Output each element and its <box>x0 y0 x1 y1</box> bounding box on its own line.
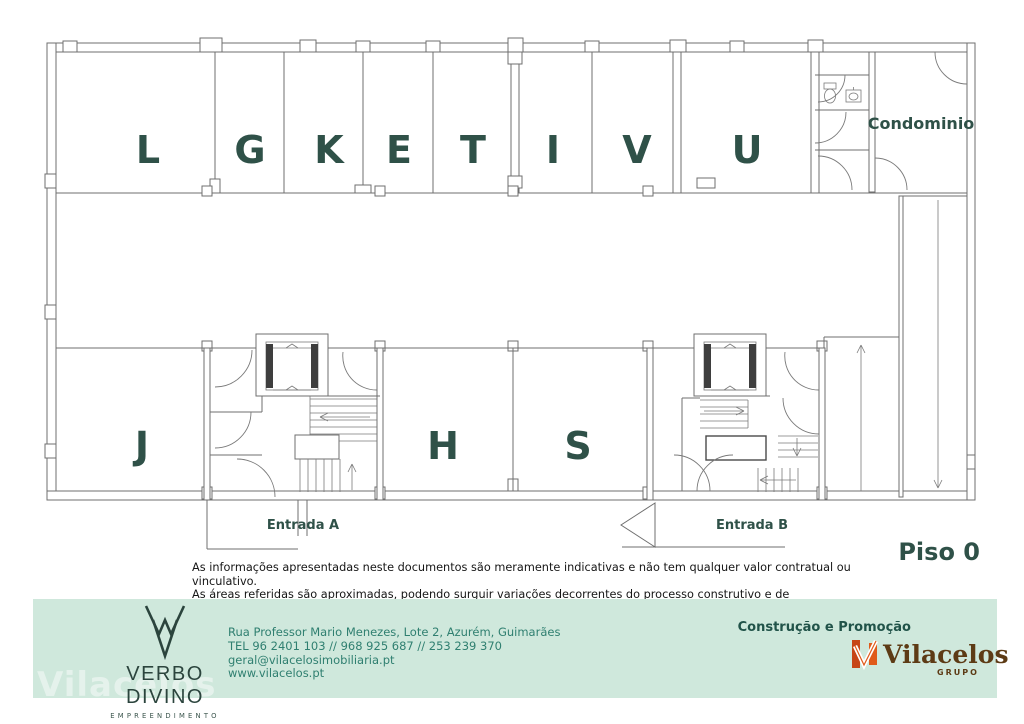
unit-label-v: V <box>622 128 652 172</box>
entrance-a-label: Entrada A <box>267 518 339 533</box>
developer-subtitle: EMPREENDIMENTO <box>95 712 235 720</box>
footer-band: Vilacelos VERBO DIVINO EMPREENDIMENTO Ru… <box>33 599 997 698</box>
disclaimer-line-1: As informações apresentadas neste docume… <box>192 561 872 588</box>
contact-address: Rua Professor Mario Menezes, Lote 2, Azu… <box>228 626 560 640</box>
stairs-b-icon <box>700 400 818 492</box>
unit-label-j: J <box>132 424 149 468</box>
developer-logo: VERBO DIVINO EMPREENDIMENTO <box>95 602 235 720</box>
top-row-partitions <box>56 52 967 193</box>
brand-subtitle: GRUPO <box>937 668 979 677</box>
promoter-heading: Construção e Promoção <box>738 620 911 635</box>
sink-icon <box>846 87 861 102</box>
floorplan-page: L G K E T I V U J H S Condominio Entrada… <box>0 0 1024 724</box>
condominio-label: Condominio <box>868 114 975 133</box>
stairs-a-icon <box>295 396 377 492</box>
contact-phone: TEL 96 2401 103 // 968 925 687 // 253 23… <box>228 640 560 654</box>
floor-label: Piso 0 <box>898 538 980 566</box>
verbo-divino-mark-icon <box>134 602 196 662</box>
unit-label-u: U <box>732 128 763 172</box>
unit-label-g: G <box>234 128 265 172</box>
wc-block <box>815 52 875 192</box>
unit-label-i: I <box>546 128 560 172</box>
stair-core-b <box>674 334 819 492</box>
elevator-a-icon <box>256 334 328 396</box>
top-wall-marks <box>45 38 975 469</box>
toilet-icon <box>824 83 836 103</box>
unit-label-k: K <box>314 128 345 172</box>
brand-name: Vilacelos <box>883 640 1009 669</box>
unit-label-h: H <box>427 424 459 468</box>
stair-core-a <box>210 334 380 497</box>
developer-name: VERBO DIVINO <box>95 663 235 709</box>
unit-label-t: T <box>460 128 486 172</box>
unit-label-s: S <box>564 424 591 468</box>
contact-email: geral@vilacelosimobiliaria.pt <box>228 654 560 668</box>
contact-website: www.vilacelos.pt <box>228 667 560 681</box>
elevator-b-icon <box>694 334 766 396</box>
entrance-b-label: Entrada B <box>716 518 788 533</box>
contact-block: Rua Professor Mario Menezes, Lote 2, Azu… <box>228 626 560 681</box>
unit-label-l: L <box>136 128 160 172</box>
vilacelos-mark-icon <box>852 640 880 670</box>
vilacelos-logo: Vilacelos GRUPO <box>852 640 1002 684</box>
unit-label-e: E <box>386 128 412 172</box>
ramp-area <box>824 196 967 497</box>
